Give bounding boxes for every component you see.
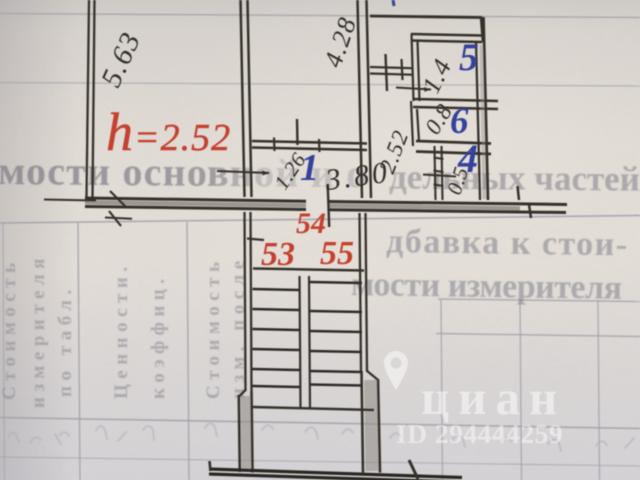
svg-text:=2.52: =2.52 — [134, 117, 231, 159]
svg-text:дбавка к стои-: дбавка к стои- — [386, 223, 629, 263]
svg-text:коэффиц.: коэффиц. — [148, 274, 169, 399]
svg-text:по табл.: по табл. — [55, 284, 76, 397]
svg-text:измерителя: измерителя — [28, 253, 49, 408]
svg-text:1: 1 — [300, 147, 319, 189]
svg-text:Стоимость: Стоимость — [0, 257, 20, 400]
svg-text:мости измерителя: мости измерителя — [351, 266, 622, 307]
svg-text:циан: циан — [421, 370, 566, 425]
svg-text:Стоимость: Стоимость — [203, 256, 224, 399]
svg-text:h: h — [106, 102, 133, 162]
svg-text:55: 55 — [320, 235, 354, 272]
svg-text:4: 4 — [457, 136, 478, 181]
svg-text:ID 294444259: ID 294444259 — [396, 418, 563, 449]
svg-text:5: 5 — [459, 36, 479, 79]
svg-text:53: 53 — [261, 236, 295, 273]
svg-text:Ценности.: Ценности. — [111, 261, 132, 399]
svg-text:дельных частей: дельных частей — [389, 157, 640, 198]
